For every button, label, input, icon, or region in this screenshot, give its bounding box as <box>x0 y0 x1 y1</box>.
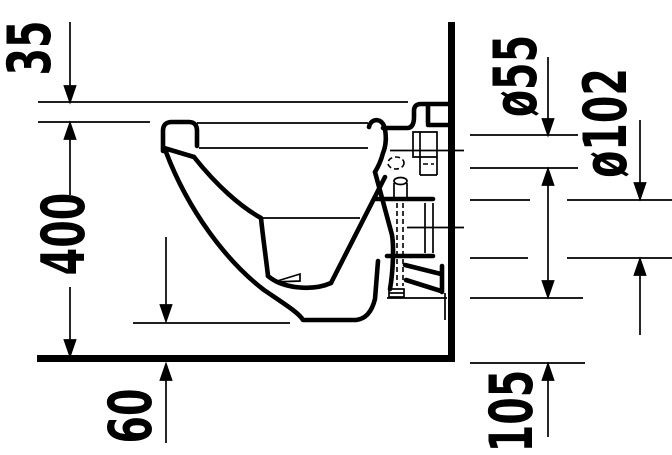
arrowhead-up <box>161 364 172 380</box>
structure-lines <box>37 22 455 361</box>
technical-drawing-canvas: 35 400 60 ø55 ø102 105 <box>0 0 672 455</box>
arrowhead-down <box>635 183 646 199</box>
dimension-label-60: 60 <box>101 388 161 443</box>
arrowhead-down <box>543 119 554 135</box>
flush-housing-detail <box>413 132 437 175</box>
dimension-label-diameter-102: ø102 <box>576 68 636 178</box>
dimension-label-105: 105 <box>482 370 542 453</box>
dimension-35 <box>65 22 76 102</box>
outer-shell <box>166 152 378 320</box>
mounting-notch <box>428 105 448 125</box>
dimension-label-35: 35 <box>0 20 60 75</box>
arrowhead-down <box>543 281 554 297</box>
toilet-profile <box>163 104 448 320</box>
outlet-elbow <box>405 265 442 292</box>
rim-nose-outline <box>163 122 197 151</box>
arrowhead-up <box>635 259 646 275</box>
dimension-label-diameter-55: ø55 <box>486 35 546 117</box>
arrowhead-down <box>65 340 76 356</box>
arrowhead-up <box>543 169 554 185</box>
dimension-label-400: 400 <box>34 193 94 276</box>
toilet-details <box>197 123 447 320</box>
downpipe-centerlines <box>397 203 403 286</box>
arrowhead-up <box>65 123 76 139</box>
flush-pipe-top <box>394 178 407 185</box>
sump-water-mark <box>274 274 300 282</box>
arrowhead-down <box>161 305 172 321</box>
arrowhead-down <box>65 86 76 102</box>
flush-inlet-circle <box>388 157 404 169</box>
